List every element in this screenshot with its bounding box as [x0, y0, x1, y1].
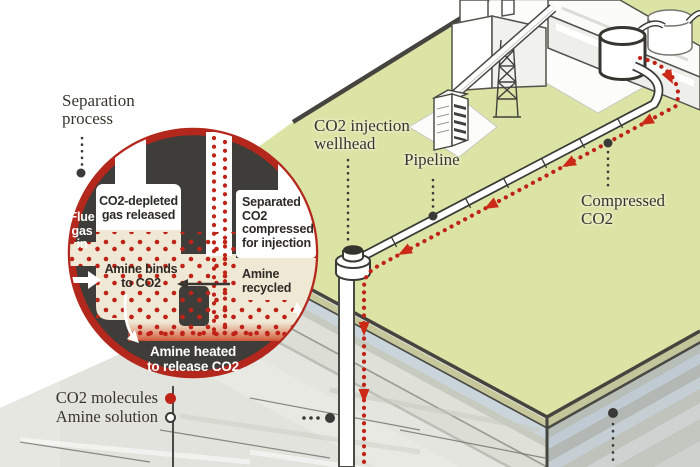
legend-co2-label: CO2 molecules — [20, 388, 158, 408]
amine-solution-icon — [165, 412, 176, 423]
legend-co2-molecules: CO2 molecules — [20, 388, 176, 408]
separated-co2-label: Separated CO2 compressed for injection — [242, 196, 314, 250]
co2-depleted-label: CO2-depleted gas released — [96, 195, 181, 222]
legend-amine-solution: Amine solution — [20, 407, 176, 427]
pipeline-label: Pipeline — [404, 151, 460, 169]
wellhead-label: CO2 injection wellhead — [314, 117, 410, 152]
separation-process-label: Separation process — [62, 92, 135, 127]
storage-tank-small — [648, 10, 692, 55]
carbon-capture-infographic: Separation process CO2 injection wellhea… — [0, 0, 700, 467]
compressed-co2-label: Compressed CO2 — [581, 192, 665, 227]
wellhead-building — [434, 90, 468, 150]
separation-process-inset — [58, 132, 316, 375]
amine-recycled-label: Amine recycled — [242, 268, 291, 295]
amine-binds-label: Amine binds to CO2 — [98, 263, 184, 290]
legend-amine-label: Amine solution — [20, 407, 158, 427]
injection-well-pipe — [339, 272, 354, 467]
flue-gas-label: Flue gas in — [64, 211, 100, 252]
amine-heated-label: Amine heated to release CO2 — [118, 344, 268, 374]
co2-molecule-icon — [165, 393, 176, 404]
